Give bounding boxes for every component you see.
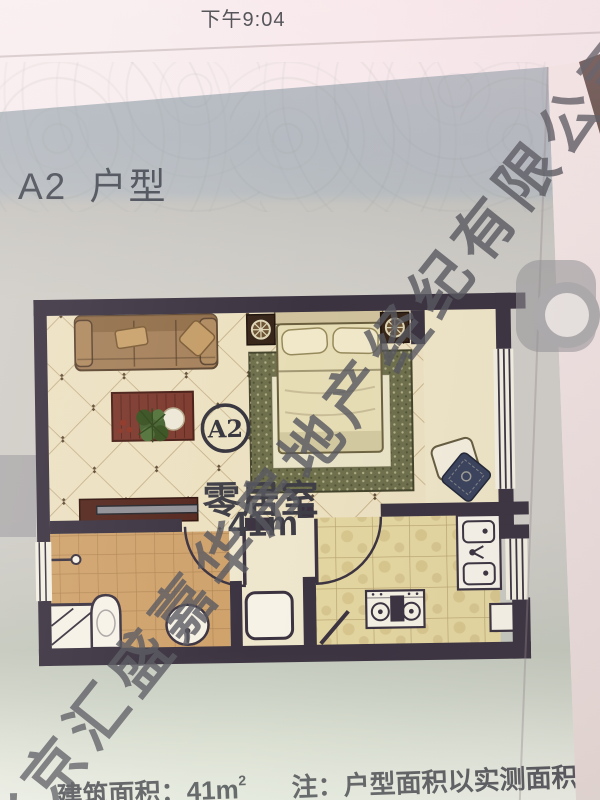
measurement-note-text: 注：户型面积以实测面积为准 xyxy=(291,760,600,800)
window xyxy=(493,349,515,489)
television xyxy=(97,505,198,515)
nightstand xyxy=(247,314,275,344)
sofa xyxy=(75,314,218,370)
bowl xyxy=(162,408,184,430)
stove xyxy=(366,590,425,628)
coffee-table xyxy=(112,392,194,443)
bed-pillow xyxy=(281,327,328,355)
window xyxy=(505,538,528,599)
status-bar-time: 下午9:04 xyxy=(188,3,298,32)
window xyxy=(35,542,52,601)
company-logo-watermark-icon xyxy=(516,260,596,352)
logo-ring-icon xyxy=(534,282,600,348)
photo-of-floor-plan-page: 下午9:04 A2 户型 xyxy=(0,0,600,800)
unit-label: A2 xyxy=(203,408,248,451)
washing-machine xyxy=(246,592,293,639)
tv-cabinet xyxy=(80,498,198,523)
table-lamp-icon xyxy=(252,320,270,338)
throw-pillow xyxy=(115,326,148,349)
kitchen-counter-sinks xyxy=(457,515,501,590)
pot xyxy=(390,595,404,621)
